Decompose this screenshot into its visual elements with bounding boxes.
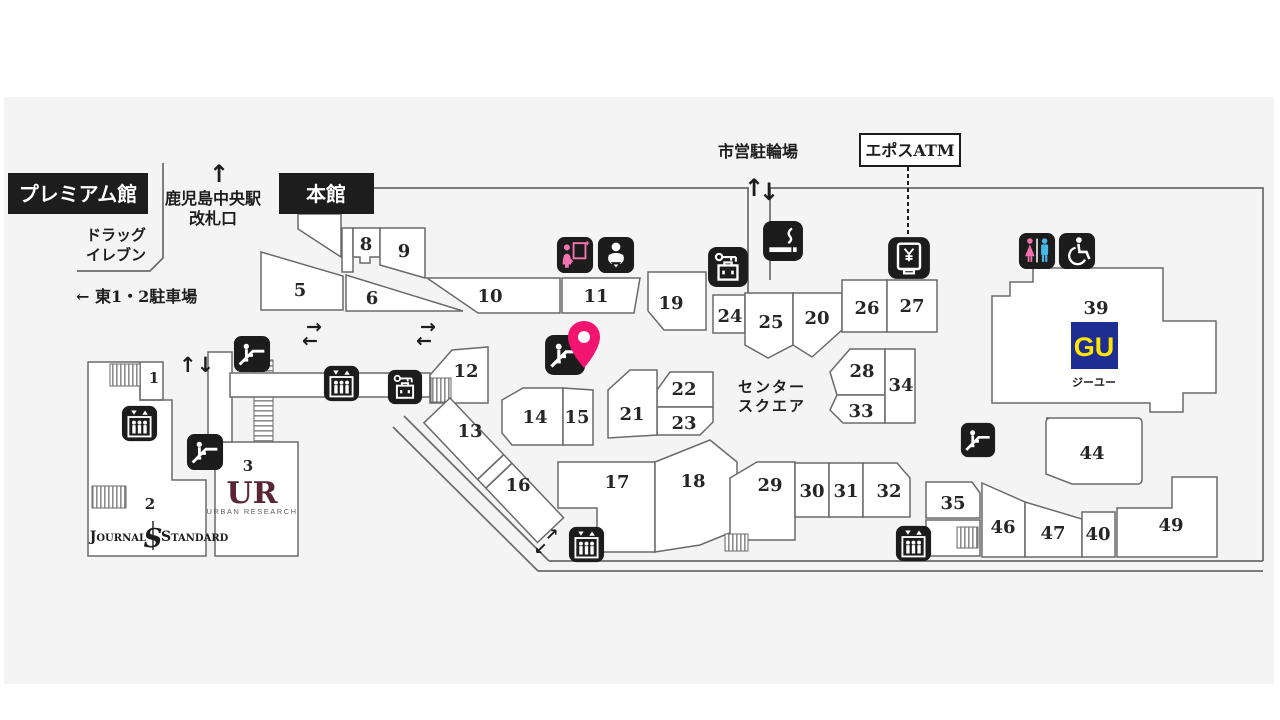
area-1-number: 1 — [149, 369, 159, 387]
area-6-number: 6 — [366, 288, 379, 309]
urban-research-logo: UR — [226, 476, 278, 511]
powder-room-icon — [557, 237, 593, 273]
stairs-hatch-premium-top — [110, 364, 140, 386]
area-13-number: 13 — [457, 421, 482, 442]
walkway-arrow-sw: ↙ — [534, 539, 547, 558]
area-24-number: 24 — [717, 306, 742, 327]
journal-standard-left: Journal — [88, 529, 146, 545]
escalator-icon-premium-mid — [187, 434, 223, 470]
baby-room-icon — [598, 237, 634, 273]
area-17-number: 17 — [604, 472, 629, 493]
area-35-number: 35 — [940, 493, 965, 514]
area-49-number: 49 — [1158, 515, 1183, 536]
elevator-icon-south-center — [569, 527, 604, 562]
elevator-icon-south-east — [896, 526, 931, 561]
station-arrow-up: ↑ — [209, 160, 229, 188]
area-26-number: 26 — [854, 298, 879, 319]
area-32-number: 32 — [876, 481, 901, 502]
coin-locker-icon-west — [388, 370, 422, 404]
station-label-line1: 鹿児島中央駅 — [165, 189, 262, 208]
area-33-number: 33 — [848, 401, 873, 422]
coin-locker-icon-north — [708, 247, 748, 287]
smoking-area-icon — [763, 221, 803, 261]
escalator-icon-premium-top — [234, 336, 270, 372]
area-34-number: 34 — [888, 375, 913, 396]
elevator-icon-link — [324, 366, 359, 401]
area-39-number: 39 — [1083, 298, 1108, 319]
toilet-icon — [1019, 233, 1055, 269]
swap-arrow-left-2: ← — [416, 330, 432, 352]
floor-map-svg: プレミアム館 本館 ↑ 鹿児島中央駅 改札口 ドラッグ イレブン ← 東1・2駐… — [0, 0, 1280, 720]
area-31-number: 31 — [833, 481, 858, 502]
area-23-number: 23 — [671, 413, 696, 434]
swap-arrow-left-1: ← — [302, 330, 318, 352]
area-20-number: 20 — [804, 308, 829, 329]
station-label-line2: 改札口 — [189, 209, 237, 228]
area-22-number: 22 — [671, 379, 696, 400]
center-square-line2: スクエア — [738, 397, 806, 415]
stairs-hatch-premium-mid — [92, 486, 126, 508]
east-parking-label: ← 東1・2駐車場 — [76, 287, 197, 306]
area-9-number: 9 — [398, 241, 411, 262]
area-12-number: 12 — [453, 361, 478, 382]
area-3-number: 3 — [243, 457, 253, 475]
mall-floor-map: プレミアム館 本館 ↑ 鹿児島中央駅 改札口 ドラッグ イレブン ← 東1・2駐… — [0, 0, 1280, 720]
journal-standard-right: Standard — [161, 529, 229, 545]
area-11-number: 11 — [583, 286, 608, 307]
area-5-number: 5 — [294, 280, 307, 301]
stairs-hatch-29 — [725, 534, 748, 551]
area-46-number: 46 — [990, 517, 1015, 538]
area-10-number: 10 — [477, 286, 502, 307]
bicycle-parking-label: 市営駐輪場 — [718, 142, 798, 161]
area-29-shape — [730, 462, 795, 540]
area-14-number: 14 — [522, 407, 547, 428]
stairs-hatch-12 — [431, 378, 451, 402]
area-28-number: 28 — [849, 361, 874, 382]
center-square-line1: センター — [738, 378, 806, 396]
area-21-number: 21 — [619, 404, 644, 425]
area-40-number: 40 — [1085, 524, 1110, 545]
drug-eleven-line1: ドラッグ — [86, 226, 146, 244]
area-47-number: 47 — [1040, 523, 1065, 544]
area-44-number: 44 — [1079, 443, 1104, 464]
area-8-number: 8 — [360, 234, 373, 255]
area-30-number: 30 — [799, 481, 824, 502]
corridor-8-left — [342, 228, 353, 272]
main-building-label: 本館 — [306, 182, 346, 206]
area-27-number: 27 — [899, 296, 924, 317]
area-19-number: 19 — [658, 293, 683, 314]
area-25-number: 25 — [758, 312, 783, 333]
gu-logo: GU — [1074, 332, 1115, 362]
area-18-number: 18 — [680, 471, 705, 492]
bicycle-arrow-down: ↓ — [759, 178, 779, 206]
area-2-number: 2 — [145, 495, 155, 513]
area-15-number: 15 — [564, 407, 589, 428]
stairs-hatch-35 — [957, 527, 978, 548]
area-29-number: 29 — [757, 475, 782, 496]
escalator-icon-east — [961, 423, 995, 457]
premium-building-label: プレミアム館 — [19, 182, 138, 206]
elevator-icon-premium — [122, 406, 157, 441]
epos-atm-label: エポスATM — [865, 141, 954, 160]
urban-research-name: URBAN RESEARCH — [206, 507, 297, 516]
wheelchair-toilet-icon — [1059, 233, 1095, 269]
gu-store-name: ジーユー — [1072, 376, 1116, 389]
drug-eleven-line2: イレブン — [86, 246, 146, 264]
premium-updown-arrows: ↑↓ — [179, 353, 214, 377]
atm-icon — [888, 237, 930, 279]
area-16-number: 16 — [505, 475, 530, 496]
